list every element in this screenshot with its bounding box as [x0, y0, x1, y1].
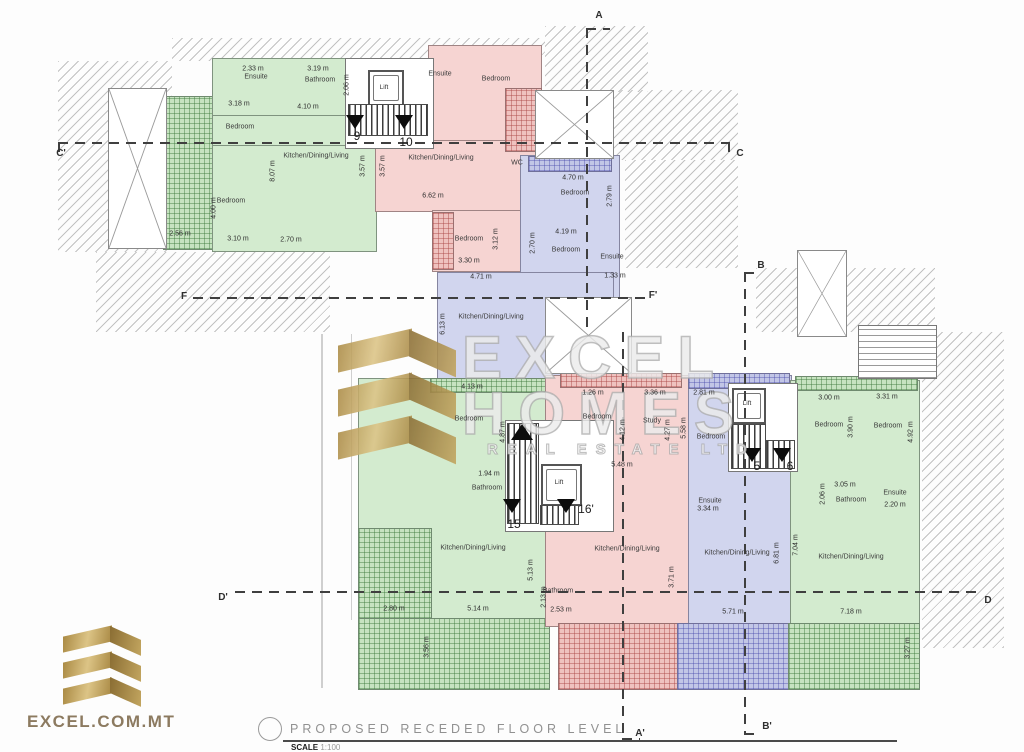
courtyard-shaft	[797, 250, 847, 337]
dim-label: 2.70 m	[530, 232, 537, 253]
stair-num: 9	[354, 130, 361, 142]
marker-label: D'	[218, 593, 228, 603]
room-label: Bedroom	[583, 414, 611, 421]
section-line-c	[728, 142, 730, 159]
apartment-6-terrace	[788, 623, 920, 690]
marker-label: C	[736, 149, 743, 159]
marker-label: A	[595, 11, 602, 21]
dim-label: 2.81 m	[693, 390, 714, 397]
marker-label: F'	[649, 291, 658, 301]
dim-label: 4.70 m	[562, 175, 583, 182]
dim-label: 3.57 m	[380, 155, 387, 176]
dim-label: 5.48 m	[611, 462, 632, 469]
courtyard-shaft	[535, 90, 614, 159]
room-label: Bedroom	[815, 422, 843, 429]
dim-label: 7.18 m	[840, 609, 861, 616]
room-label: WC	[511, 160, 523, 167]
room-label: Kitchen/Dining/Living	[440, 545, 505, 552]
dim-label: 1.33 m	[604, 273, 625, 280]
room-label: Bedroom	[561, 190, 589, 197]
room-label: Study	[643, 418, 661, 425]
dim-label: 2.79 m	[607, 185, 614, 206]
watermark-text-excel: EXCEL	[462, 328, 727, 388]
dim-label: 5.58 m	[681, 417, 688, 438]
marker-label: A'	[635, 729, 645, 739]
dim-label: 3.34 m	[697, 506, 718, 513]
dim-label: 2.70 m	[280, 237, 301, 244]
room-label: Bedroom	[217, 198, 245, 205]
room-label: Kitchen/Dining/Living	[283, 153, 348, 160]
stair-num: 6	[787, 460, 794, 472]
lift-label: Lift	[555, 480, 564, 487]
dim-label: 3.10 m	[227, 236, 248, 243]
dim-label: 3.05 m	[834, 482, 855, 489]
room-label: Kitchen/Dining/Living	[704, 550, 769, 557]
hatch-area	[96, 252, 330, 332]
room-label: Ensuite	[698, 498, 721, 505]
wall-line	[321, 334, 323, 688]
stair-num: 10	[399, 136, 412, 148]
room-label: Bedroom	[226, 124, 254, 131]
dim-label: 3.90 m	[848, 416, 855, 437]
drawing-scale: SCALE 1:100	[291, 743, 340, 752]
dim-label: 2.13 m	[541, 586, 548, 607]
section-line-f	[193, 297, 648, 299]
dim-label: 5.13 m	[528, 559, 535, 580]
dim-label: 4.92 m	[908, 421, 915, 442]
title-block-circle	[258, 717, 282, 741]
apartment-10-terrace	[432, 212, 454, 270]
section-line-b	[744, 272, 758, 274]
dim-label: 3.18 m	[228, 101, 249, 108]
dim-label: 4.13 m	[461, 384, 482, 391]
dim-label: 5.71 m	[722, 609, 743, 616]
dim-label: 6.13 m	[440, 313, 447, 334]
room-label: Ensuite	[428, 71, 451, 78]
apartment-15-terrace	[358, 618, 550, 690]
dim-label: 3.27 m	[905, 637, 912, 658]
dim-label: 4.71 m	[470, 274, 491, 281]
dim-label: 3.19 m	[307, 66, 328, 73]
room-label: Bedroom	[455, 236, 483, 243]
room-label: Bathroom	[836, 497, 866, 504]
floor-plan: EXCEL HOMES REAL ESTATE LTD EXCEL.COM.MT…	[0, 0, 1024, 752]
apartment-5-terrace	[677, 623, 790, 690]
room-label: Ensuite	[600, 254, 623, 261]
dim-label: 3.71 m	[669, 566, 676, 587]
drawing-title: PROPOSED RECEDED FLOOR LEVEL	[290, 722, 626, 736]
dim-label: 1.94 m	[478, 471, 499, 478]
dim-label: 6.81 m	[774, 542, 781, 563]
dim-label: 4.12 m	[620, 419, 627, 440]
dim-label: 5.14 m	[467, 606, 488, 613]
excel-homes-logo-footer	[63, 630, 141, 706]
dim-label: 4.19 m	[555, 229, 576, 236]
section-line-b	[744, 272, 746, 733]
lift-label: Lift	[380, 85, 389, 92]
stairs	[858, 325, 937, 379]
apartment-16-terrace	[558, 623, 679, 690]
dim-label: 6.62 m	[422, 193, 443, 200]
dim-label: 4.27 m	[665, 419, 672, 440]
section-line-a	[586, 28, 610, 30]
scale-label: SCALE	[291, 743, 318, 752]
room-label: Bedroom	[697, 434, 725, 441]
dim-label: 8.07 m	[270, 160, 277, 181]
dim-label: 2.06 m	[820, 483, 827, 504]
stair-arrow-icon	[557, 499, 575, 513]
hatch-area	[625, 160, 738, 268]
dim-label: 2.06 m	[344, 74, 351, 95]
dim-label: 3.30 m	[458, 258, 479, 265]
room-label: Bedroom	[874, 423, 902, 430]
hatch-area	[922, 332, 1004, 648]
room-label: Kitchen/Dining/Living	[458, 314, 523, 321]
courtyard-shaft	[108, 88, 167, 249]
room-label: Bedroom	[455, 416, 483, 423]
section-line-b	[744, 733, 758, 735]
stair-num: 15	[507, 518, 520, 530]
marker-label: C'	[56, 149, 66, 159]
section-line-c	[58, 142, 728, 144]
stair-arrow-icon	[395, 115, 413, 129]
section-line-d	[235, 591, 977, 593]
dim-label: 2.56 m	[169, 231, 190, 238]
room-label: Kitchen/Dining/Living	[408, 155, 473, 162]
room-label: Kitchen/Dining/Living	[594, 546, 659, 553]
room-label: Bathroom	[472, 485, 502, 492]
lift-label: Lift	[743, 401, 752, 408]
scale-value: 1:100	[320, 743, 340, 752]
stair-arrow-icon	[346, 115, 364, 129]
marker-label: F	[181, 292, 187, 302]
apartment-9-terrace	[163, 96, 215, 250]
dim-label: 2.80 m	[383, 606, 404, 613]
title-underline	[283, 740, 897, 742]
room-label: Bedroom	[482, 76, 510, 83]
watermark-text-real-estate: REAL ESTATE LTD	[487, 441, 756, 458]
dim-label: 2.20 m	[884, 502, 905, 509]
dim-label: 3.31 m	[876, 394, 897, 401]
hatch-area	[612, 90, 738, 160]
dim-label: 3.00 m	[818, 395, 839, 402]
dim-label: 4.00 m	[211, 197, 218, 218]
room-label: Bedroom	[552, 247, 580, 254]
stair-num: 5	[754, 460, 761, 472]
dim-label: 3.56 m	[424, 636, 431, 657]
room-label: Ensuite	[244, 74, 267, 81]
footer-logo-text: EXCEL.COM.MT	[27, 712, 175, 732]
room-label: Bathroom	[305, 77, 335, 84]
stair-num: 16'	[578, 503, 594, 515]
dim-label: 2.33 m	[242, 66, 263, 73]
dim-label: 7.04 m	[793, 534, 800, 555]
marker-label: B	[757, 261, 764, 271]
marker-label: B'	[762, 722, 772, 732]
room-label: Kitchen/Dining/Living	[818, 554, 883, 561]
dim-label: 4.10 m	[297, 104, 318, 111]
dim-label: 1.26 m	[582, 390, 603, 397]
hatch-area	[545, 26, 648, 92]
dim-label: 3.12 m	[493, 228, 500, 249]
dim-label: 3.36 m	[644, 390, 665, 397]
dim-label: 3.57 m	[360, 155, 367, 176]
section-line-a	[586, 28, 588, 332]
room-label: Ensuite	[883, 490, 906, 497]
stair-arrow-icon	[503, 499, 521, 513]
marker-label: D	[984, 596, 991, 606]
dim-label: 4.87 m	[500, 421, 507, 442]
excel-homes-logo-watermark	[338, 335, 456, 463]
dim-label: 2.53 m	[550, 607, 571, 614]
